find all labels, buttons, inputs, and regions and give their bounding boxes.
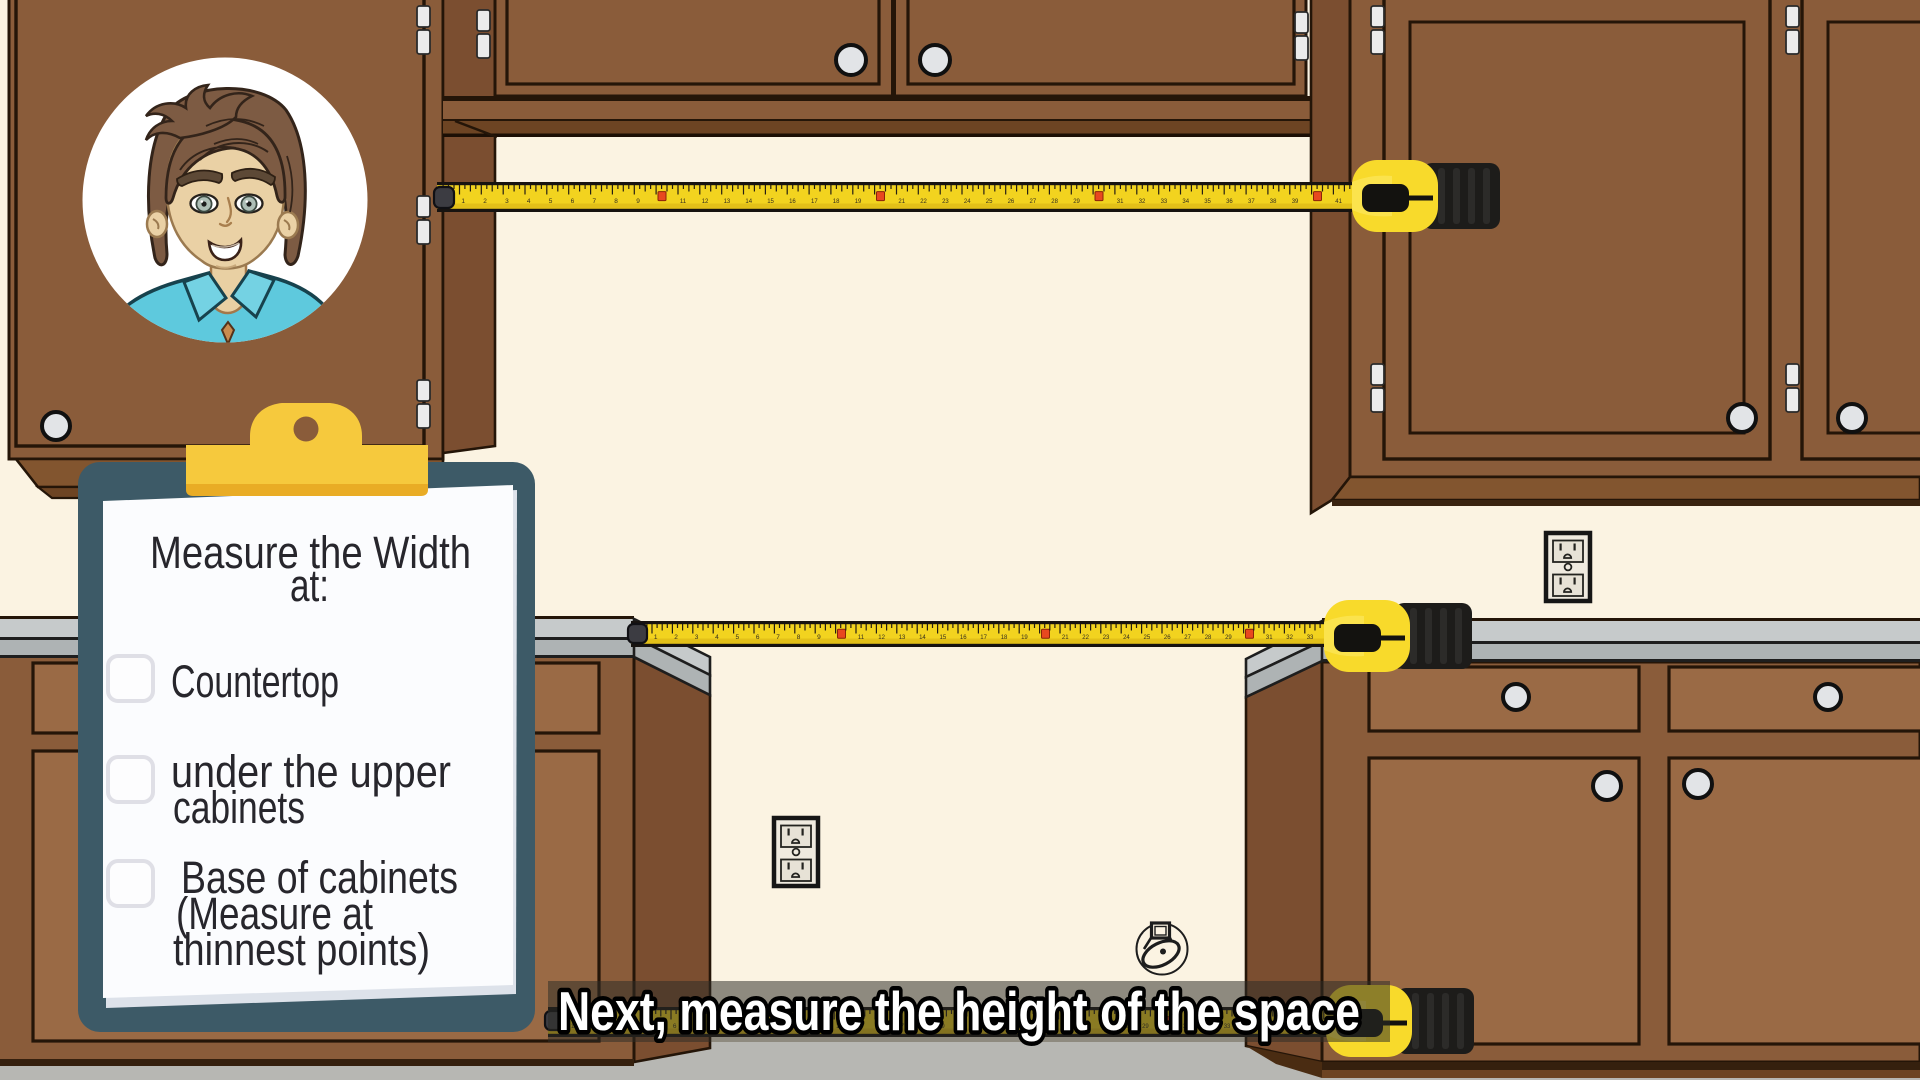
svg-text:29: 29 xyxy=(1073,199,1080,205)
svg-text:cabinets: cabinets xyxy=(173,782,305,833)
svg-text:25: 25 xyxy=(986,199,993,205)
svg-text:19: 19 xyxy=(855,199,862,205)
svg-text:5: 5 xyxy=(549,198,553,205)
svg-text:11: 11 xyxy=(680,199,687,205)
svg-text:22: 22 xyxy=(920,199,927,205)
svg-text:4: 4 xyxy=(527,198,531,205)
svg-text:6: 6 xyxy=(571,198,575,205)
svg-text:1: 1 xyxy=(654,634,658,641)
svg-text:26: 26 xyxy=(1164,635,1171,641)
svg-text:1: 1 xyxy=(461,198,465,205)
svg-text:17: 17 xyxy=(811,199,818,205)
svg-text:32: 32 xyxy=(1139,199,1146,205)
svg-text:Next, measure the height of th: Next, measure the height of the space xyxy=(558,980,1360,1042)
svg-text:34: 34 xyxy=(1182,199,1189,205)
svg-text:Countertop: Countertop xyxy=(171,656,339,707)
svg-text:3: 3 xyxy=(695,634,699,641)
svg-text:16: 16 xyxy=(960,635,967,641)
svg-text:2: 2 xyxy=(483,198,487,205)
svg-text:7: 7 xyxy=(776,634,780,641)
svg-text:9: 9 xyxy=(636,198,640,205)
svg-text:16: 16 xyxy=(789,199,796,205)
svg-text:at:: at: xyxy=(290,560,329,611)
svg-text:31: 31 xyxy=(1266,635,1273,641)
svg-text:24: 24 xyxy=(964,199,971,205)
svg-text:22: 22 xyxy=(1082,635,1089,641)
svg-text:11: 11 xyxy=(858,635,865,641)
svg-text:15: 15 xyxy=(940,635,947,641)
svg-text:15: 15 xyxy=(767,199,774,205)
svg-text:14: 14 xyxy=(745,199,752,205)
svg-text:8: 8 xyxy=(797,634,801,641)
svg-text:39: 39 xyxy=(1292,199,1299,205)
svg-text:23: 23 xyxy=(942,199,949,205)
svg-text:9: 9 xyxy=(817,634,821,641)
svg-text:21: 21 xyxy=(1062,635,1069,641)
svg-text:31: 31 xyxy=(1117,199,1124,205)
svg-text:8: 8 xyxy=(614,198,618,205)
svg-text:33: 33 xyxy=(1161,199,1168,205)
svg-text:28: 28 xyxy=(1205,635,1212,641)
svg-text:28: 28 xyxy=(1051,199,1058,205)
svg-text:18: 18 xyxy=(1001,635,1008,641)
svg-text:29: 29 xyxy=(1225,635,1232,641)
svg-text:32: 32 xyxy=(1286,635,1293,641)
svg-text:3: 3 xyxy=(505,198,509,205)
svg-text:12: 12 xyxy=(702,199,709,205)
svg-text:13: 13 xyxy=(724,199,731,205)
svg-text:38: 38 xyxy=(1270,199,1277,205)
svg-text:37: 37 xyxy=(1248,199,1255,205)
svg-text:6: 6 xyxy=(756,634,760,641)
svg-text:5: 5 xyxy=(736,634,740,641)
svg-text:14: 14 xyxy=(919,635,926,641)
svg-text:26: 26 xyxy=(1008,199,1015,205)
svg-text:12: 12 xyxy=(878,635,885,641)
svg-text:18: 18 xyxy=(833,199,840,205)
svg-text:23: 23 xyxy=(1103,635,1110,641)
svg-text:27: 27 xyxy=(1184,635,1191,641)
svg-text:thinnest points): thinnest points) xyxy=(173,924,430,975)
svg-text:36: 36 xyxy=(1226,199,1233,205)
svg-text:13: 13 xyxy=(899,635,906,641)
svg-text:17: 17 xyxy=(980,635,987,641)
svg-text:19: 19 xyxy=(1021,635,1028,641)
svg-text:25: 25 xyxy=(1144,635,1151,641)
svg-text:2: 2 xyxy=(674,634,678,641)
svg-text:41: 41 xyxy=(1335,199,1342,205)
svg-text:27: 27 xyxy=(1030,199,1037,205)
svg-text:21: 21 xyxy=(898,199,905,205)
svg-text:24: 24 xyxy=(1123,635,1130,641)
svg-text:35: 35 xyxy=(1204,199,1211,205)
svg-text:7: 7 xyxy=(593,198,597,205)
svg-text:33: 33 xyxy=(1307,635,1314,641)
svg-text:4: 4 xyxy=(715,634,719,641)
